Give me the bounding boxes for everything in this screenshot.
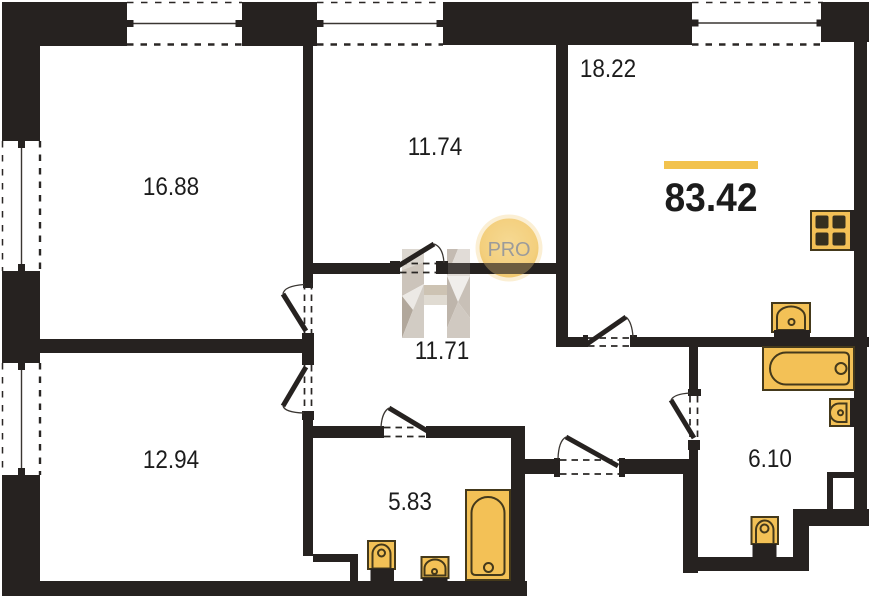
svg-text:12.94: 12.94	[143, 446, 199, 474]
svg-text:6.10: 6.10	[748, 445, 792, 473]
svg-text:11.71: 11.71	[415, 337, 470, 365]
svg-text:5.83: 5.83	[388, 488, 432, 516]
svg-text:18.22: 18.22	[580, 55, 636, 83]
svg-text:PRO: PRO	[488, 239, 531, 261]
svg-text:11.74: 11.74	[408, 133, 463, 161]
svg-text:83.42: 83.42	[664, 176, 757, 221]
svg-text:16.88: 16.88	[143, 173, 199, 201]
